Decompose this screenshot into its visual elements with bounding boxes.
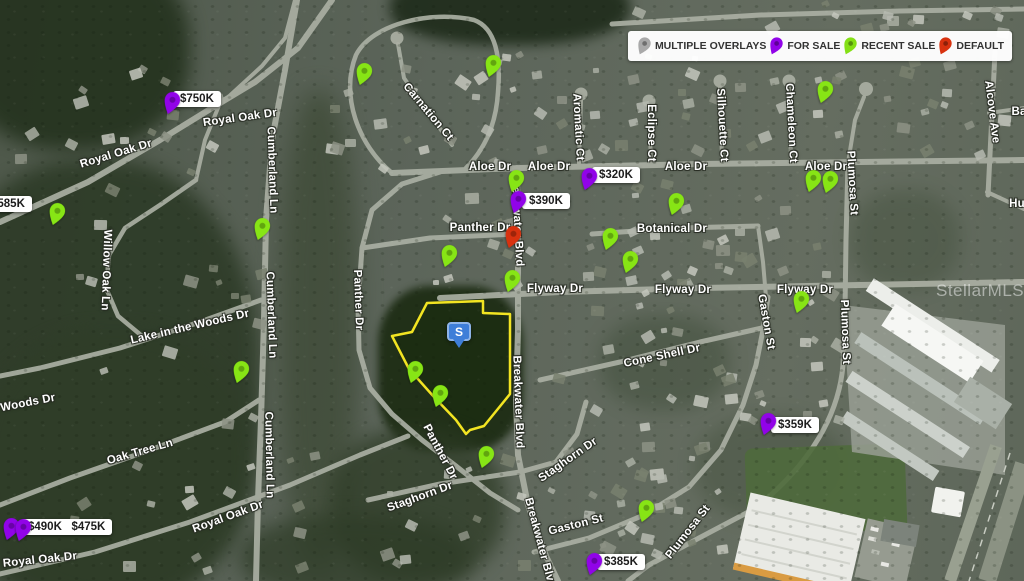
pins-layer bbox=[0, 0, 1024, 581]
legend-label: DEFAULT bbox=[956, 40, 1004, 52]
map-pin-recent-sale[interactable] bbox=[787, 287, 813, 317]
legend-item-default: DEFAULT bbox=[937, 36, 1004, 56]
legend-item-multiple-overlays: MULTIPLE OVERLAYS bbox=[636, 36, 766, 56]
legend-item-for-sale: FOR SALE bbox=[768, 36, 840, 56]
recent-sale-pin-icon bbox=[839, 34, 861, 58]
map-pin-recent-sale[interactable] bbox=[472, 442, 498, 472]
map-legend: MULTIPLE OVERLAYS FOR SALE RECENT SALE D… bbox=[628, 31, 1012, 61]
for-sale-pin-icon bbox=[765, 34, 787, 58]
map-pin-for-sale[interactable] bbox=[158, 88, 184, 118]
legend-item-recent-sale: RECENT SALE bbox=[842, 36, 935, 56]
map-pin-recent-sale[interactable] bbox=[227, 357, 253, 387]
map-pin-recent-sale[interactable] bbox=[426, 381, 452, 411]
map-pin-recent-sale[interactable] bbox=[435, 241, 461, 271]
map-pin-recent-sale[interactable] bbox=[479, 51, 505, 81]
map-pin-recent-sale[interactable] bbox=[248, 214, 274, 244]
legend-label: RECENT SALE bbox=[861, 40, 935, 52]
map-pin-recent-sale[interactable] bbox=[401, 357, 427, 387]
map-pin-recent-sale[interactable] bbox=[596, 224, 622, 254]
map-pin-recent-sale[interactable] bbox=[350, 59, 376, 89]
multiple-overlays-pin-icon bbox=[633, 34, 655, 58]
default-pin-icon bbox=[934, 34, 956, 58]
map-pin-for-sale[interactable] bbox=[575, 164, 601, 194]
map-pin-recent-sale[interactable] bbox=[616, 247, 642, 277]
map-pin-recent-sale[interactable] bbox=[811, 77, 837, 107]
map-pin-default[interactable] bbox=[499, 222, 525, 252]
map-pin-for-sale[interactable] bbox=[754, 409, 780, 439]
map-pin-recent-sale[interactable] bbox=[498, 266, 524, 296]
legend-label: FOR SALE bbox=[787, 40, 840, 52]
legend-label: MULTIPLE OVERLAYS bbox=[655, 40, 766, 52]
satellite-map[interactable]: Royal Oak DrRoyal Oak DrRoyal Oak DrRoya… bbox=[0, 0, 1024, 581]
map-pin-recent-sale[interactable] bbox=[632, 496, 658, 526]
map-pin-for-sale[interactable] bbox=[580, 549, 606, 579]
map-pin-recent-sale[interactable] bbox=[662, 189, 688, 219]
map-pin-recent-sale[interactable] bbox=[43, 199, 69, 229]
